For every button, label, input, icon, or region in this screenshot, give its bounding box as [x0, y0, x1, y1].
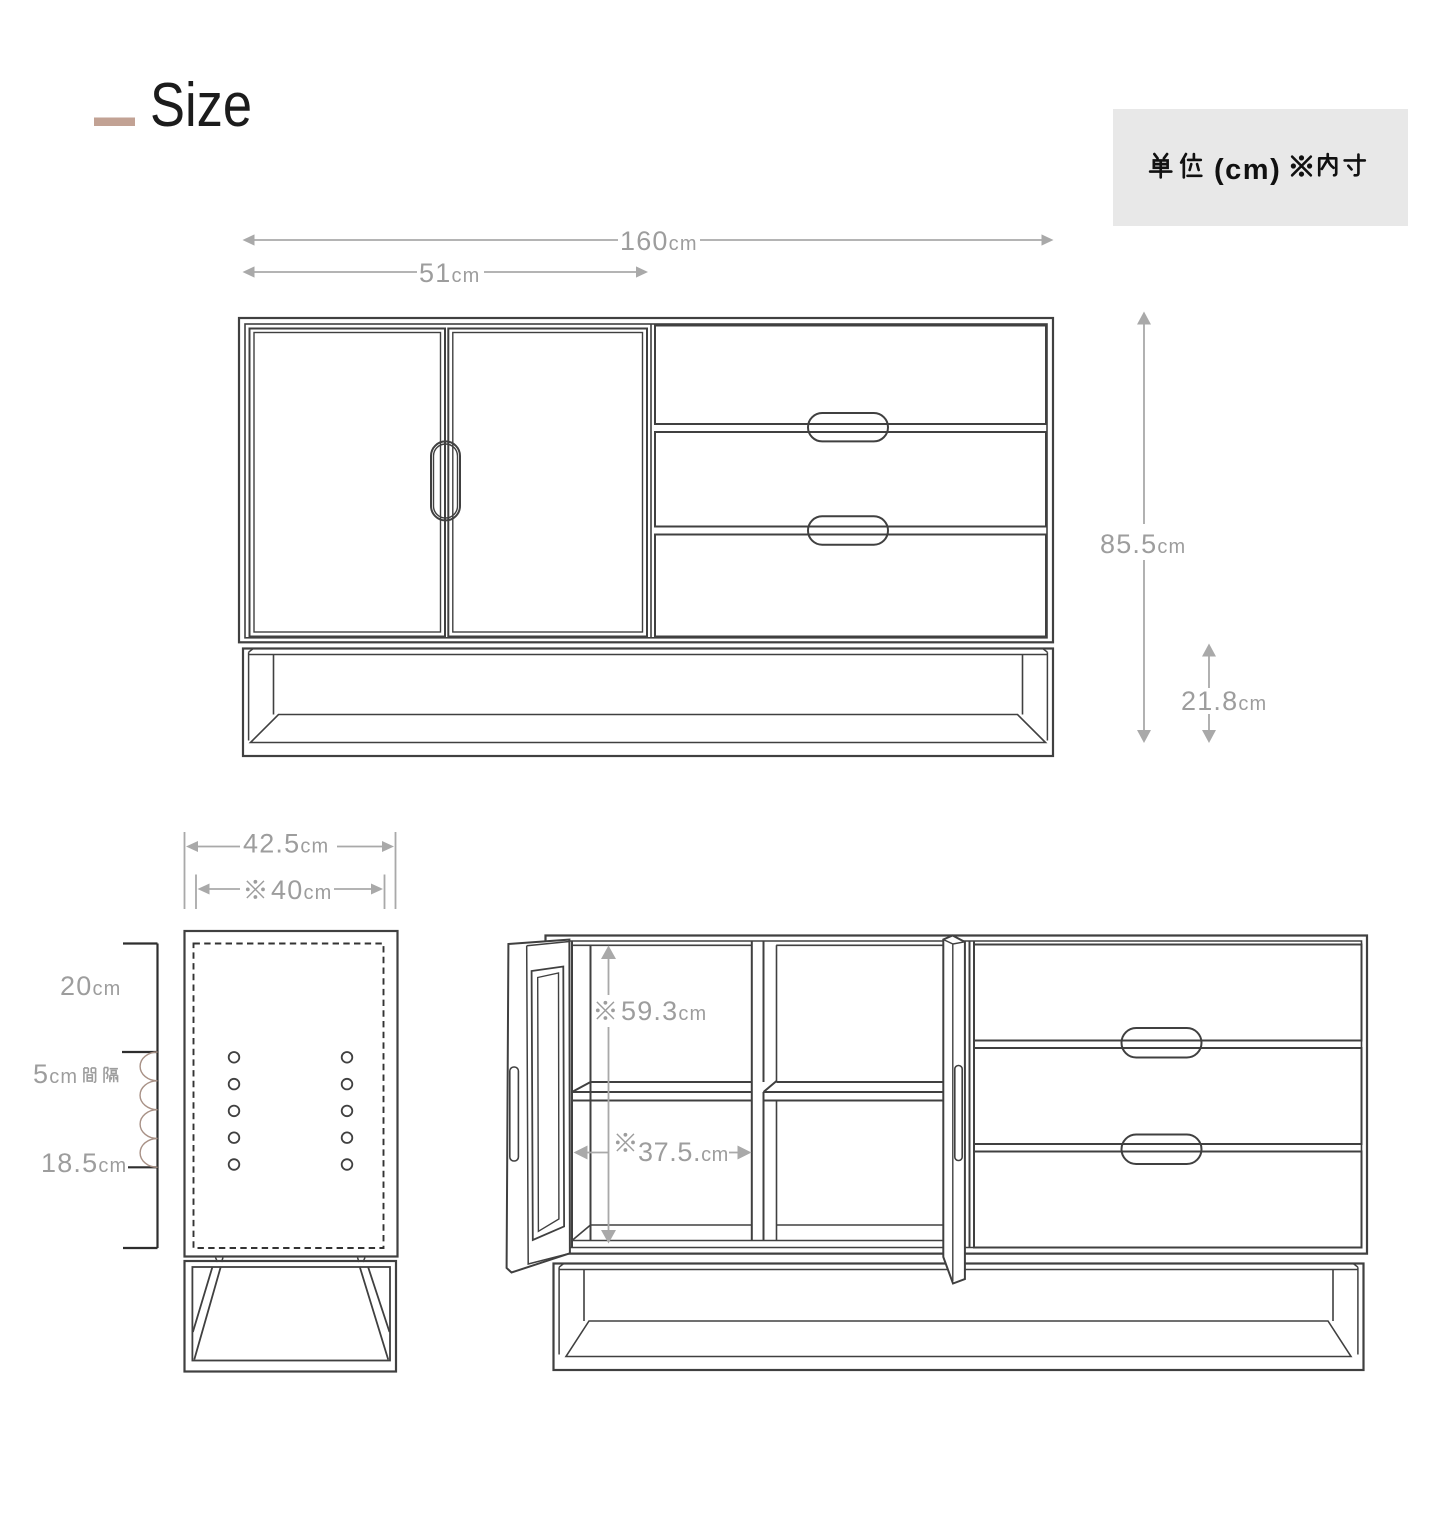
svg-text:Size: Size [150, 71, 252, 140]
svg-text:(cm): (cm) [1214, 154, 1281, 186]
